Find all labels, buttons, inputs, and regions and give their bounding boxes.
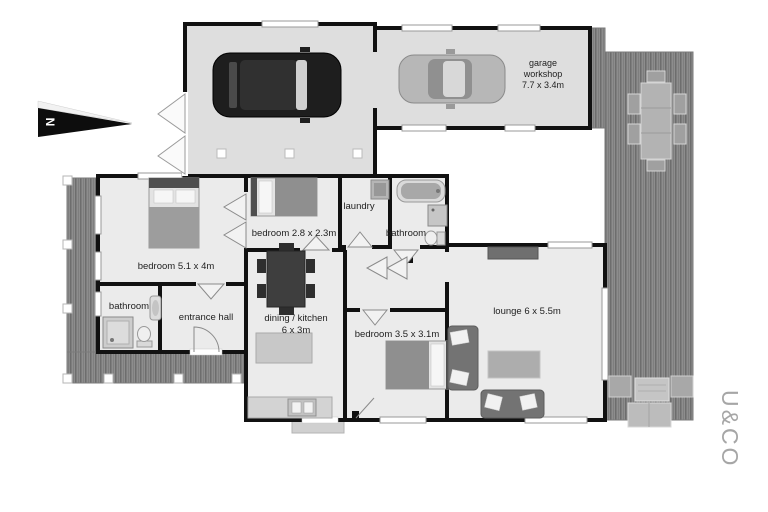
kitchen-island <box>256 333 312 363</box>
label-dining-line1: dining / kitchen <box>264 313 327 324</box>
label-garage-line2: workshop <box>523 69 563 79</box>
room-corridor <box>345 247 447 310</box>
car-silver <box>399 49 505 109</box>
shower-left <box>103 317 133 348</box>
deck-bottom <box>67 352 253 383</box>
deck-top-strip <box>590 28 605 128</box>
window <box>498 25 540 31</box>
bathtub <box>397 180 445 202</box>
car-suv <box>213 47 341 123</box>
label-garage-line1: garage <box>529 58 557 68</box>
north-label: N <box>43 118 57 127</box>
label-bathroom-left: bathroom <box>109 301 149 312</box>
washing-machine <box>371 180 389 199</box>
window <box>505 125 535 131</box>
label-bedroom-main: bedroom 5.1 x 4m <box>138 261 215 272</box>
floorplan: garage workshop 7.7 x 3.4m bedroom 5.1 x… <box>0 0 768 512</box>
window <box>262 21 318 27</box>
north-arrow: N <box>38 101 132 137</box>
label-garage-line3: 7.7 x 3.4m <box>522 80 564 90</box>
shower-main <box>428 205 447 226</box>
toilet-left <box>137 327 152 348</box>
window <box>548 242 592 248</box>
label-lounge: lounge 6 x 5.5m <box>493 306 561 317</box>
label-bedroom-small: bedroom 2.8 x 2.3m <box>252 228 337 239</box>
sofa-side <box>448 326 478 390</box>
internal-opening <box>372 52 378 108</box>
door-opening <box>444 252 450 282</box>
sofa-bottom <box>481 390 544 418</box>
bed-single-small <box>251 178 317 216</box>
bed-double-main <box>149 178 199 248</box>
garage-door-leaf <box>158 136 185 174</box>
label-bathroom-main: bathroom <box>386 228 426 239</box>
sink-left <box>150 296 161 320</box>
label-laundry: laundry <box>343 201 374 212</box>
bed-double-third <box>386 341 452 389</box>
label-dining-line2: 6 x 3m <box>282 325 311 336</box>
window <box>95 196 101 234</box>
window-slider <box>602 288 608 380</box>
window <box>95 292 101 316</box>
watermark: U&CO <box>717 390 743 468</box>
kitchen-counter <box>248 397 332 418</box>
floorplan-canvas: garage workshop 7.7 x 3.4m bedroom 5.1 x… <box>0 0 768 512</box>
door-opening <box>392 244 420 250</box>
window <box>402 25 452 31</box>
media-unit <box>488 247 538 259</box>
entrance-door-opening <box>190 349 222 355</box>
rug <box>488 351 540 378</box>
garage-door-leaf <box>158 94 185 133</box>
window <box>95 252 101 280</box>
toilet-main <box>425 231 445 245</box>
window <box>380 417 426 423</box>
window <box>402 125 446 131</box>
label-entrance-hall: entrance hall <box>179 312 233 323</box>
label-bedroom-third: bedroom 3.5 x 3.1m <box>355 329 440 340</box>
